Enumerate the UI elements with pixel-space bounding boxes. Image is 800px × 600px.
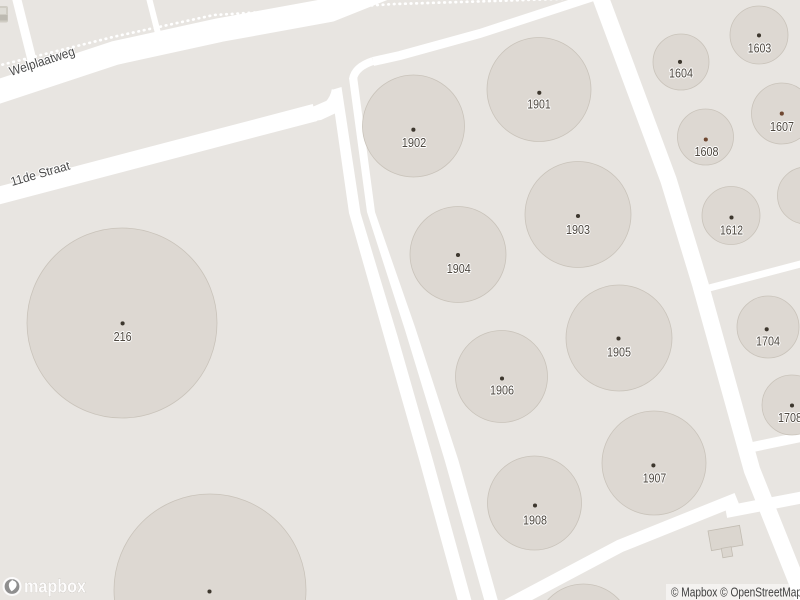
svg-text:mapbox: mapbox	[24, 577, 86, 597]
svg-text:1604: 1604	[669, 66, 693, 81]
svg-text:1608: 1608	[695, 144, 719, 159]
svg-text:1607: 1607	[770, 119, 794, 134]
svg-text:1905: 1905	[607, 345, 631, 360]
svg-text:1704: 1704	[756, 334, 780, 349]
svg-text:1603: 1603	[748, 41, 772, 56]
svg-text:1907: 1907	[643, 471, 667, 486]
svg-text:1708: 1708	[778, 410, 800, 425]
svg-text:1908: 1908	[523, 513, 547, 528]
svg-text:1612: 1612	[720, 223, 743, 238]
svg-text:1903: 1903	[566, 222, 590, 237]
svg-text:© Mapbox © OpenStreetMap: © Mapbox © OpenStreetMap	[671, 586, 800, 600]
svg-text:1906: 1906	[490, 383, 514, 398]
svg-text:1904: 1904	[447, 261, 471, 276]
svg-text:1901: 1901	[527, 97, 551, 112]
svg-text:1902: 1902	[402, 135, 427, 150]
svg-text:216: 216	[114, 329, 132, 344]
